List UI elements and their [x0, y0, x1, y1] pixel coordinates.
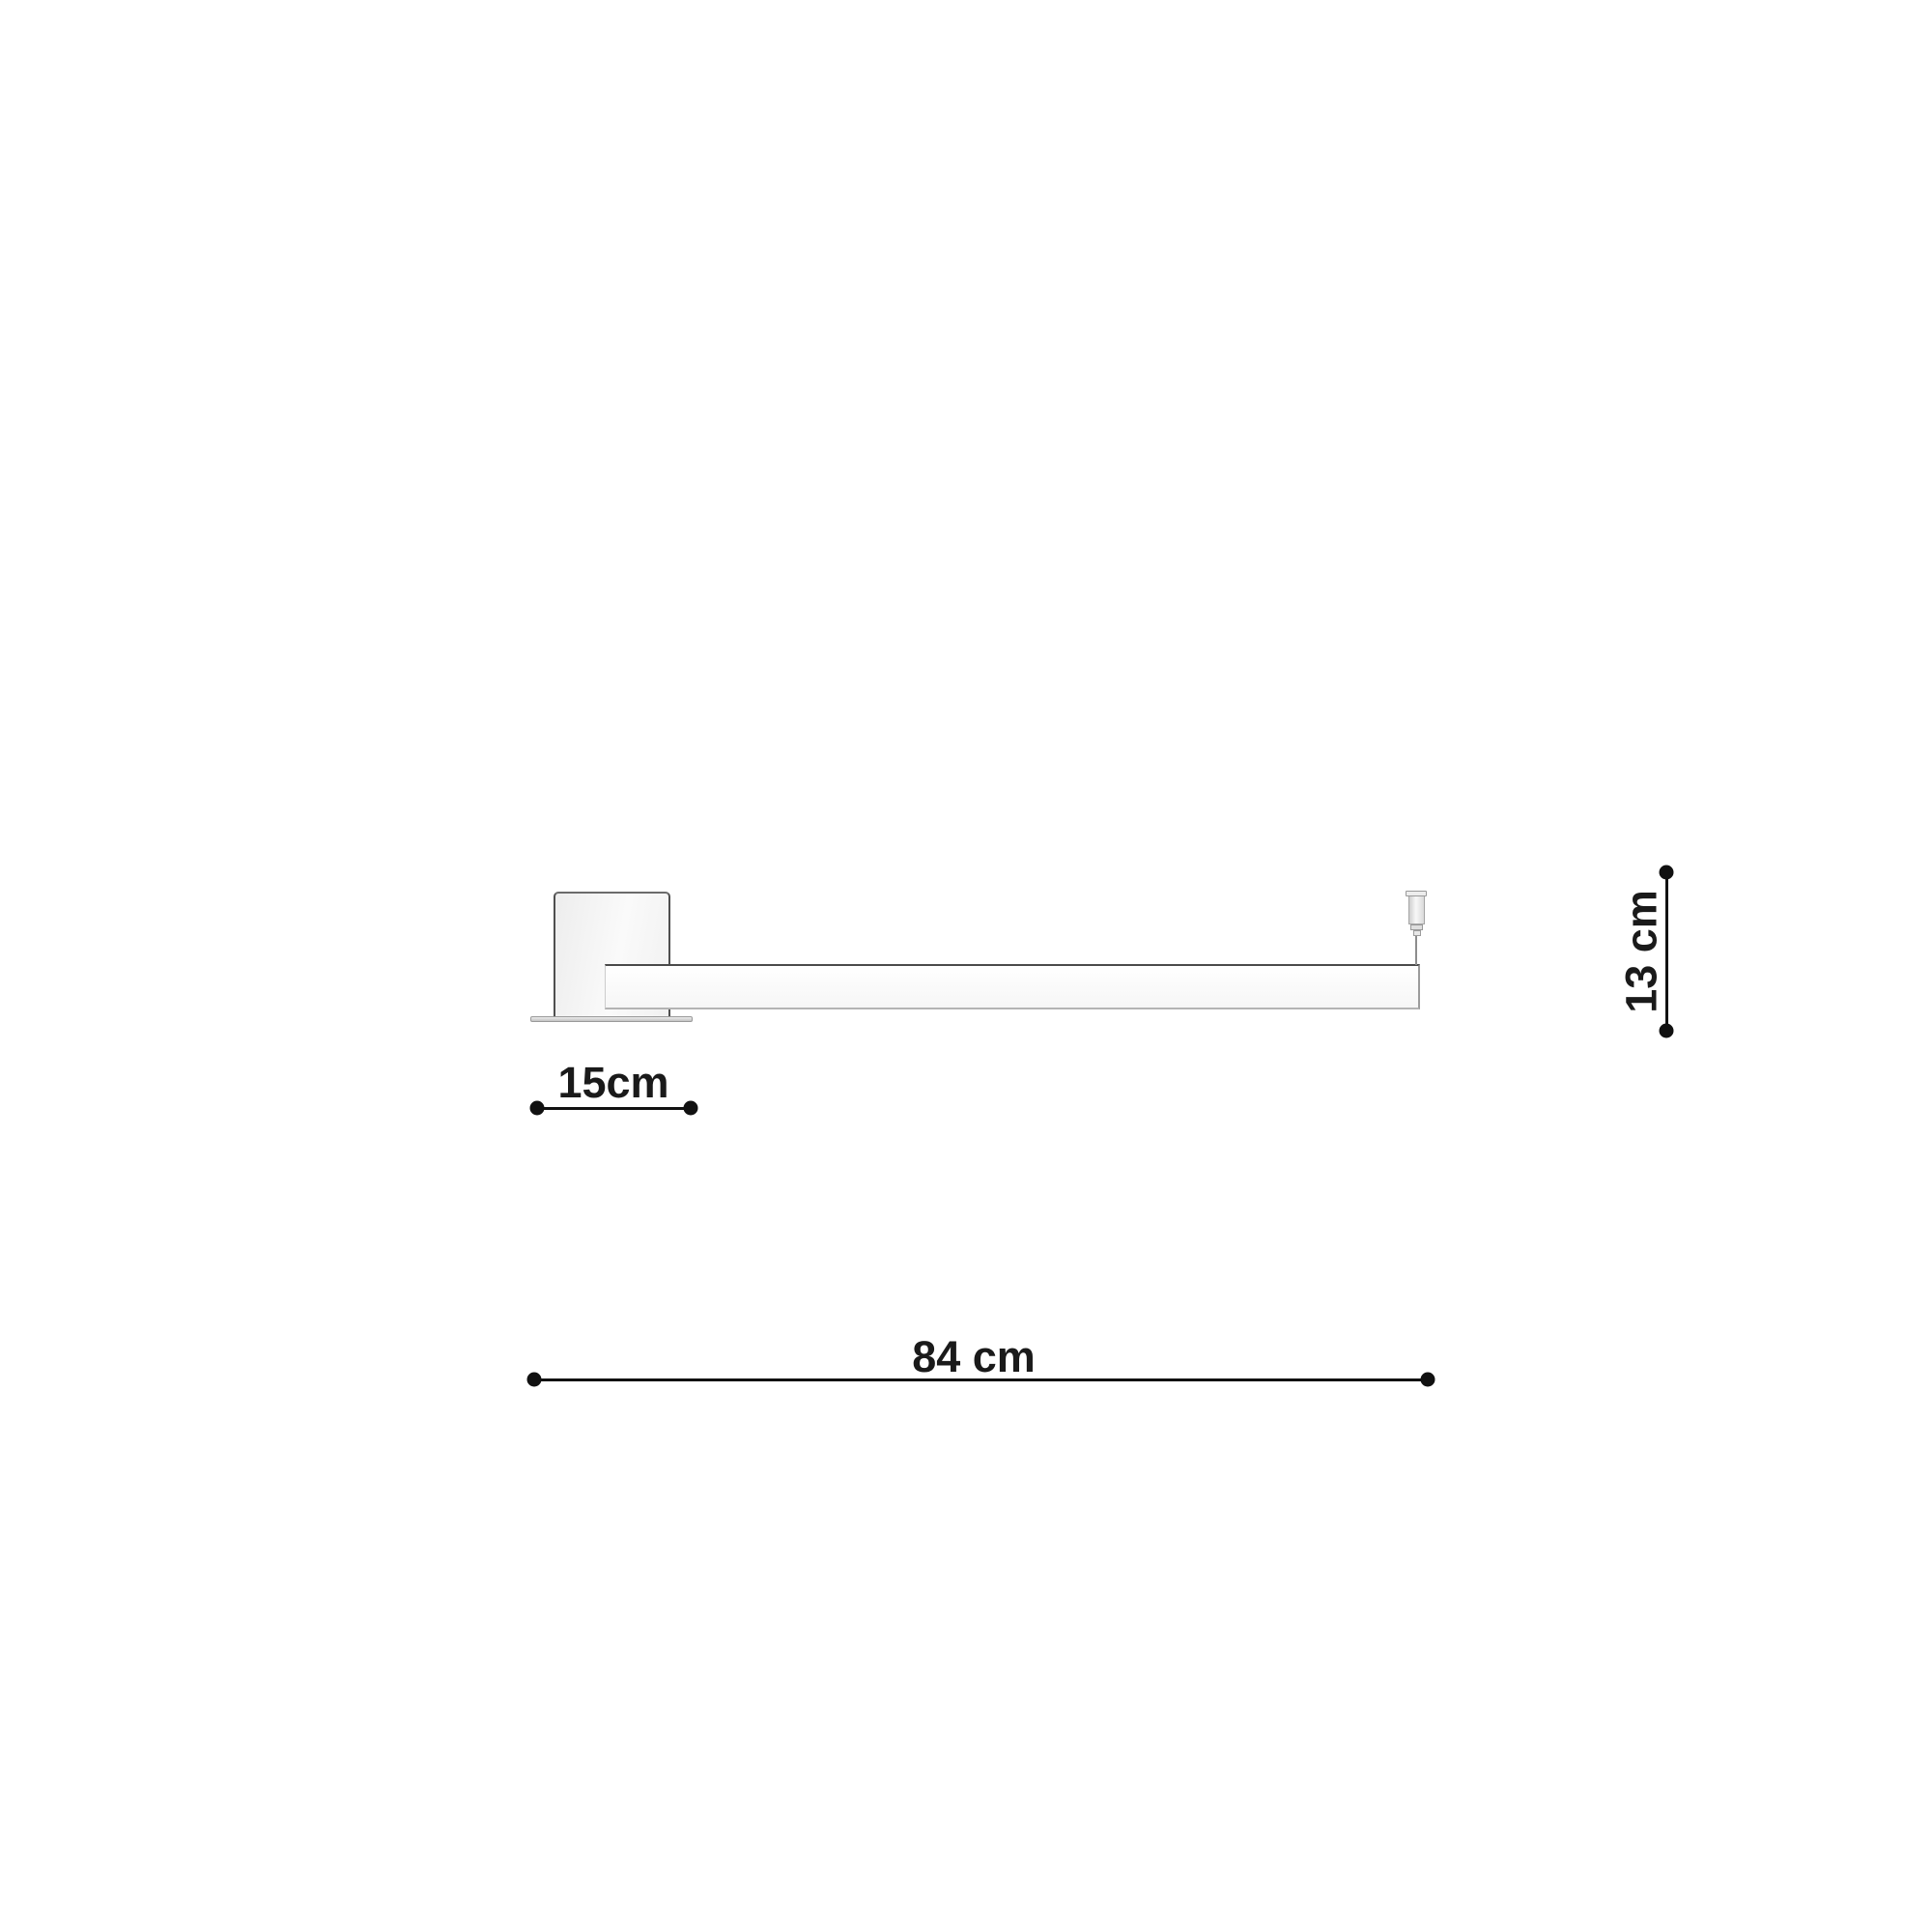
dimension-endpoint-dot — [527, 1373, 542, 1387]
dimension-label-15cm: 15cm — [557, 1061, 668, 1104]
dimension-endpoint-dot — [530, 1101, 545, 1116]
lamp-bar — [605, 964, 1420, 1009]
dimension-endpoint-dot — [684, 1101, 698, 1116]
dimension-endpoint-dot — [1660, 866, 1674, 880]
dimension-endpoint-dot — [1421, 1373, 1435, 1387]
dimension-endpoint-dot — [1660, 1024, 1674, 1038]
cable-gripper-body — [1408, 896, 1425, 924]
dimension-label-13cm: 13 cm — [1620, 890, 1663, 1013]
suspension-wire — [1415, 936, 1417, 965]
dimension-line-13cm — [1665, 872, 1668, 1031]
dimension-label-84cm: 84 cm — [912, 1335, 1036, 1378]
dimension-line-15cm — [537, 1107, 692, 1110]
dimension-line-84cm — [534, 1378, 1429, 1381]
dimension-diagram: 15cm 84 cm 13 cm — [0, 0, 1932, 1932]
canopy-flange — [530, 1016, 693, 1022]
